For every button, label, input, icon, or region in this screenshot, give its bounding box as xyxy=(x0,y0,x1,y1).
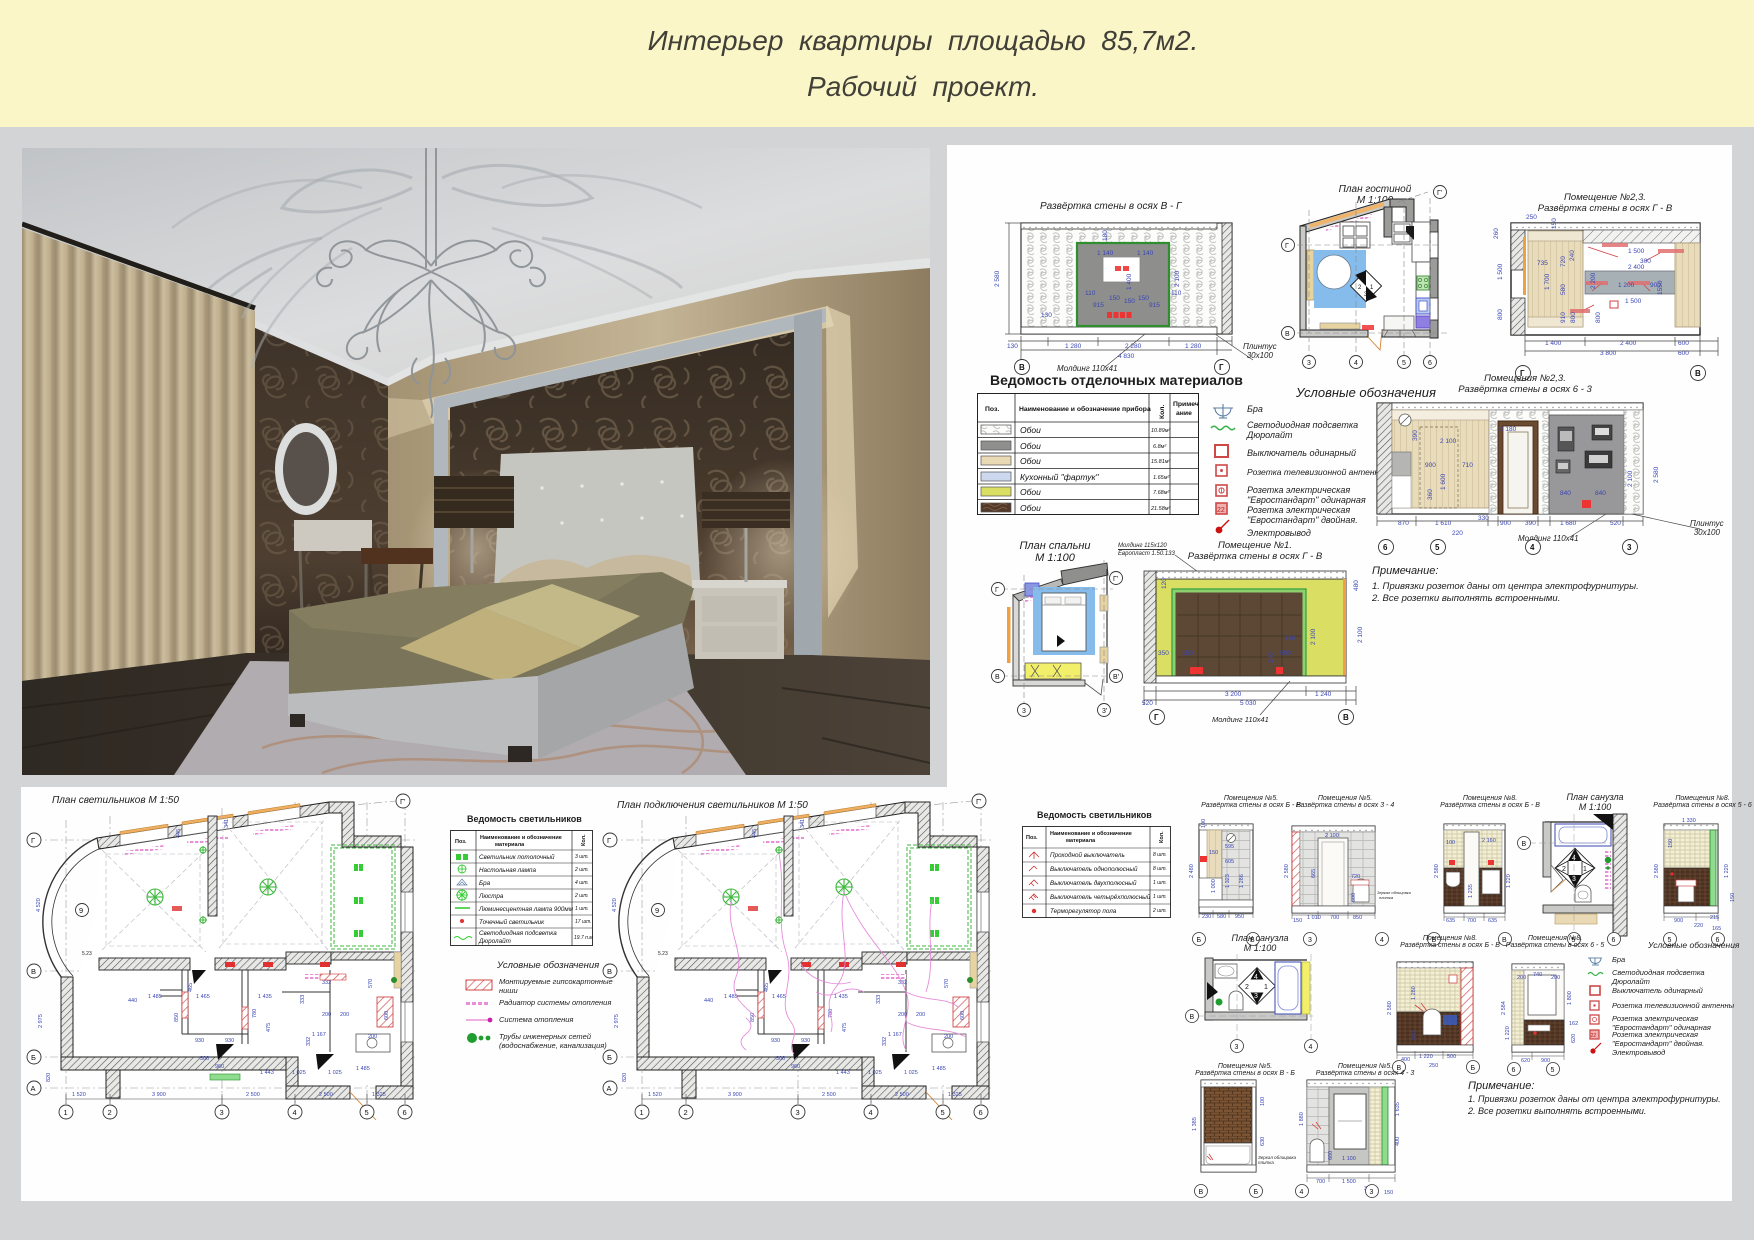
svg-text:2: 2 xyxy=(1245,984,1249,991)
svg-text:Г: Г xyxy=(995,587,999,594)
svg-text:595: 595 xyxy=(1225,844,1234,850)
svg-text:635: 635 xyxy=(1488,918,1497,924)
svg-text:В: В xyxy=(1285,331,1290,338)
svg-text:1 235: 1 235 xyxy=(1468,884,1474,898)
svg-text:В': В' xyxy=(1113,674,1119,681)
svg-text:700: 700 xyxy=(1467,918,1476,924)
svg-text:4: 4 xyxy=(1254,974,1258,981)
svg-text:1 400: 1 400 xyxy=(1126,273,1133,290)
svg-text:735: 735 xyxy=(1537,260,1548,267)
svg-text:150: 150 xyxy=(1668,839,1674,848)
svg-text:1 шт.: 1 шт. xyxy=(1153,894,1167,900)
svg-text:Наименование и обозначение: Наименование и обозначение xyxy=(1050,830,1132,837)
svg-text:5: 5 xyxy=(1402,360,1406,367)
svg-text:1 500: 1 500 xyxy=(1625,298,1642,305)
svg-text:150: 150 xyxy=(1182,650,1193,657)
svg-text:1 500: 1 500 xyxy=(1628,248,1645,255)
svg-text:840: 840 xyxy=(1560,490,1571,497)
svg-text:Выключатель четырёхполюсный: Выключатель четырёхполюсный xyxy=(1050,893,1151,901)
svg-text:620: 620 xyxy=(1571,1034,1577,1043)
svg-text:915: 915 xyxy=(1149,302,1160,309)
svg-text:материала: материала xyxy=(1066,838,1096,844)
svg-text:950: 950 xyxy=(1235,914,1244,920)
svg-text:1.65м²: 1.65м² xyxy=(1153,475,1169,481)
svg-text:220: 220 xyxy=(1694,923,1703,929)
svg-text:3: 3 xyxy=(1370,1189,1374,1196)
svg-text:2 580: 2 580 xyxy=(1654,864,1660,878)
svg-text:100: 100 xyxy=(1201,819,1207,828)
svg-text:В: В xyxy=(1199,1189,1204,1196)
svg-text:150: 150 xyxy=(1384,1190,1393,1196)
svg-text:Г: Г xyxy=(1154,713,1159,722)
svg-text:740: 740 xyxy=(1533,972,1542,978)
svg-text:1 140: 1 140 xyxy=(1097,250,1114,257)
svg-text:220: 220 xyxy=(1452,530,1463,537)
svg-text:120: 120 xyxy=(1161,578,1168,589)
svg-text:Б: Б xyxy=(1471,1065,1476,1072)
svg-text:Б: Б xyxy=(1197,937,1202,944)
svg-text:500: 500 xyxy=(1411,1031,1417,1040)
svg-text:900: 900 xyxy=(1425,462,1436,469)
svg-text:Г: Г xyxy=(1285,243,1289,250)
svg-text:3: 3 xyxy=(1235,1044,1239,1051)
svg-text:1 200: 1 200 xyxy=(1618,282,1635,289)
svg-text:2 584: 2 584 xyxy=(1501,1001,1507,1015)
svg-text:850: 850 xyxy=(1353,915,1362,921)
svg-text:100: 100 xyxy=(1260,1097,1266,1106)
svg-text:ание: ание xyxy=(1176,410,1192,417)
svg-text:150: 150 xyxy=(1551,218,1558,229)
svg-text:6: 6 xyxy=(1512,1067,1516,1074)
svg-text:Выключатель двухполюсный: Выключатель двухполюсный xyxy=(1050,879,1137,887)
svg-text:600: 600 xyxy=(1328,1151,1334,1160)
svg-text:240: 240 xyxy=(1569,250,1576,261)
svg-text:В: В xyxy=(1190,1014,1195,1021)
svg-text:2 100: 2 100 xyxy=(1174,270,1181,287)
svg-text:1 100: 1 100 xyxy=(1342,1156,1356,1162)
svg-text:630: 630 xyxy=(1260,1137,1266,1146)
svg-text:910: 910 xyxy=(1560,312,1567,323)
svg-text:700: 700 xyxy=(1330,915,1339,921)
svg-text:230: 230 xyxy=(1202,914,1211,920)
svg-text:1 385: 1 385 xyxy=(1192,1117,1198,1131)
svg-text:8 шт.: 8 шт. xyxy=(1153,852,1167,858)
svg-text:5 030: 5 030 xyxy=(1240,700,1257,707)
svg-text:100: 100 xyxy=(1446,840,1455,846)
svg-text:8 шт.: 8 шт. xyxy=(1153,866,1167,872)
svg-text:Г': Г' xyxy=(1113,576,1118,583)
svg-text:110: 110 xyxy=(1085,290,1096,297)
svg-text:В: В xyxy=(1019,363,1025,372)
svg-text:1 шт.: 1 шт. xyxy=(575,906,589,912)
svg-text:180: 180 xyxy=(1102,230,1109,241)
svg-text:915: 915 xyxy=(1093,302,1104,309)
svg-text:4: 4 xyxy=(1380,937,1384,944)
svg-text:2 580: 2 580 xyxy=(1434,864,1440,878)
svg-text:Кол.: Кол. xyxy=(581,834,587,846)
svg-text:2 шт.: 2 шт. xyxy=(1152,908,1167,914)
svg-text:110: 110 xyxy=(1171,290,1182,297)
svg-text:165: 165 xyxy=(1712,926,1721,932)
svg-text:840: 840 xyxy=(1595,490,1606,497)
svg-text:Обои: Обои xyxy=(1020,441,1041,451)
svg-text:3: 3 xyxy=(1307,360,1311,367)
svg-text:22: 22 xyxy=(1591,1033,1597,1039)
svg-text:1 240: 1 240 xyxy=(1315,691,1332,698)
svg-text:250: 250 xyxy=(1429,1063,1438,1069)
svg-text:1 600: 1 600 xyxy=(1440,473,1447,490)
svg-text:Молдинг 110х41: Молдинг 110х41 xyxy=(1518,534,1579,543)
svg-text:Обои: Обои xyxy=(1020,456,1041,466)
svg-text:200: 200 xyxy=(1551,975,1560,981)
svg-text:Кол.: Кол. xyxy=(1159,405,1166,419)
svg-text:1 280: 1 280 xyxy=(1065,343,1082,350)
svg-text:800: 800 xyxy=(1595,312,1602,323)
svg-text:Дюролайт: Дюролайт xyxy=(478,937,511,945)
svg-text:В: В xyxy=(1695,369,1701,378)
svg-text:6.8м²: 6.8м² xyxy=(1153,444,1166,450)
svg-text:1 140: 1 140 xyxy=(1137,250,1154,257)
svg-text:3 шт.: 3 шт. xyxy=(575,854,589,860)
svg-text:Люминесцентная лампа 900мм: Люминесцентная лампа 900мм xyxy=(478,906,574,913)
svg-text:1 286: 1 286 xyxy=(1239,874,1245,888)
svg-text:7.68м²: 7.68м² xyxy=(1153,490,1169,496)
svg-text:Б: Б xyxy=(1254,1189,1259,1196)
svg-text:3: 3 xyxy=(1308,937,1312,944)
svg-text:Г: Г xyxy=(1219,363,1224,372)
svg-text:700: 700 xyxy=(1316,1179,1325,1185)
svg-text:10.89м²: 10.89м² xyxy=(1151,428,1171,434)
svg-text:2 100: 2 100 xyxy=(1310,628,1317,645)
svg-text:2 160: 2 160 xyxy=(1482,838,1496,844)
svg-text:1 280: 1 280 xyxy=(1411,986,1417,1000)
svg-text:Точечный светильник: Точечный светильник xyxy=(479,918,545,926)
svg-text:360: 360 xyxy=(1427,489,1434,500)
svg-text:Г': Г' xyxy=(1437,190,1442,197)
svg-text:Обои: Обои xyxy=(1020,503,1041,513)
svg-text:800: 800 xyxy=(1570,312,1577,323)
svg-text:1 280: 1 280 xyxy=(1185,343,1202,350)
svg-text:240: 240 xyxy=(1268,652,1275,663)
svg-text:2 шт.: 2 шт. xyxy=(574,893,589,899)
svg-text:Поз.: Поз. xyxy=(985,406,999,413)
svg-text:150: 150 xyxy=(1138,295,1149,302)
svg-text:500: 500 xyxy=(1280,650,1291,657)
svg-text:1 500: 1 500 xyxy=(1342,1179,1356,1185)
svg-text:130: 130 xyxy=(1041,312,1052,319)
svg-text:400: 400 xyxy=(1395,1137,1401,1146)
svg-text:162: 162 xyxy=(1569,1021,1578,1027)
svg-text:150: 150 xyxy=(1124,298,1135,305)
svg-text:3 200: 3 200 xyxy=(1225,691,1242,698)
svg-text:Проходной выключатель: Проходной выключатель xyxy=(1050,851,1125,859)
svg-text:3: 3 xyxy=(1022,708,1026,715)
svg-text:В: В xyxy=(995,674,1000,681)
svg-text:Кол.: Кол. xyxy=(1159,831,1165,843)
svg-text:3: 3 xyxy=(1254,993,1258,1000)
svg-text:5: 5 xyxy=(1435,543,1440,552)
svg-text:17 шт.: 17 шт. xyxy=(575,919,592,925)
svg-text:6: 6 xyxy=(1428,360,1432,367)
svg-text:4 шт.: 4 шт. xyxy=(575,880,589,886)
svg-text:Светильник потолочный: Светильник потолочный xyxy=(479,853,555,861)
svg-text:2 580: 2 580 xyxy=(1387,1001,1393,1015)
svg-text:2 480: 2 480 xyxy=(1189,864,1195,878)
svg-text:350: 350 xyxy=(1158,650,1169,657)
svg-text:900: 900 xyxy=(1674,918,1683,924)
svg-text:4: 4 xyxy=(1309,1044,1313,1051)
svg-text:1 шт.: 1 шт. xyxy=(1153,880,1167,886)
svg-text:150: 150 xyxy=(1209,850,1218,856)
svg-text:Светодиодная подсветка: Светодиодная подсветка xyxy=(479,929,557,937)
svg-text:1 330: 1 330 xyxy=(1682,818,1696,824)
svg-text:2 100: 2 100 xyxy=(1440,438,1457,445)
svg-text:1550: 1550 xyxy=(1657,280,1664,295)
svg-text:1 500: 1 500 xyxy=(1497,263,1504,280)
svg-text:800: 800 xyxy=(1497,309,1504,320)
svg-text:материала: материала xyxy=(495,842,525,848)
svg-text:2 180: 2 180 xyxy=(1500,426,1517,433)
svg-text:150: 150 xyxy=(1109,295,1120,302)
svg-text:Терморегулятор пола: Терморегулятор пола xyxy=(1050,908,1117,915)
svg-text:Наименование и обозначение при: Наименование и обозначение прибора xyxy=(1019,405,1151,413)
svg-text:В: В xyxy=(1522,841,1527,848)
svg-text:580: 580 xyxy=(1217,914,1226,920)
svg-text:1 220: 1 220 xyxy=(1724,864,1730,878)
svg-text:605: 605 xyxy=(1225,859,1234,865)
svg-text:6: 6 xyxy=(1383,543,1388,552)
svg-text:720: 720 xyxy=(1560,256,1567,267)
svg-text:480: 480 xyxy=(1353,580,1360,591)
svg-text:2 100: 2 100 xyxy=(1325,833,1339,839)
svg-text:1: 1 xyxy=(1264,984,1268,991)
svg-text:Поз.: Поз. xyxy=(1026,835,1038,841)
svg-text:900: 900 xyxy=(1541,1058,1550,1064)
svg-text:Примеч: Примеч xyxy=(1173,401,1199,408)
svg-text:1 220: 1 220 xyxy=(1506,874,1512,888)
svg-text:Наименование и обозначение: Наименование и обозначение xyxy=(480,834,562,841)
svg-text:2 580: 2 580 xyxy=(1284,864,1290,878)
svg-text:Бра: Бра xyxy=(479,880,491,887)
svg-text:635: 635 xyxy=(1446,918,1455,924)
svg-text:Обои: Обои xyxy=(1020,487,1041,497)
svg-text:1 323: 1 323 xyxy=(1225,874,1231,888)
svg-text:150: 150 xyxy=(1293,918,1302,924)
svg-text:2 400: 2 400 xyxy=(1628,264,1645,271)
svg-text:2 580: 2 580 xyxy=(1653,466,1660,483)
svg-text:6: 6 xyxy=(1612,937,1616,944)
svg-text:110: 110 xyxy=(1285,635,1296,642)
svg-text:4: 4 xyxy=(1300,1189,1304,1196)
svg-text:Обои: Обои xyxy=(1020,425,1041,435)
svg-text:4: 4 xyxy=(1354,360,1358,367)
svg-text:Люстра: Люстра xyxy=(478,893,504,900)
svg-text:250: 250 xyxy=(1526,214,1537,221)
svg-text:Выключатель однополюсный: Выключатель однополюсный xyxy=(1050,865,1138,873)
svg-text:1 220: 1 220 xyxy=(1505,1026,1511,1040)
svg-text:1 800: 1 800 xyxy=(1567,991,1573,1005)
svg-text:1 700: 1 700 xyxy=(1544,273,1551,290)
svg-text:390: 390 xyxy=(1412,430,1419,441)
svg-text:5: 5 xyxy=(1551,1067,1555,1074)
svg-text:Кухонный "фартук": Кухонный "фартук" xyxy=(1020,472,1099,482)
svg-text:710: 710 xyxy=(1462,462,1473,469)
svg-text:620: 620 xyxy=(1521,1058,1530,1064)
svg-text:19.7 п.м: 19.7 п.м xyxy=(574,935,593,941)
svg-text:1 000: 1 000 xyxy=(1211,879,1217,893)
svg-text:3: 3 xyxy=(1627,543,1632,552)
svg-text:Молдинг 110х41: Молдинг 110х41 xyxy=(1212,715,1269,724)
svg-text:600: 600 xyxy=(1351,893,1357,902)
svg-text:Настольная лампа: Настольная лампа xyxy=(479,867,537,874)
svg-text:1 880: 1 880 xyxy=(1299,1112,1305,1126)
svg-text:580: 580 xyxy=(1560,284,1567,295)
svg-text:665: 665 xyxy=(1311,869,1317,878)
svg-text:260: 260 xyxy=(1493,228,1500,239)
svg-text:3': 3' xyxy=(1102,708,1107,715)
svg-text:плитка: плитка xyxy=(1379,895,1394,900)
svg-text:2 200: 2 200 xyxy=(1590,272,1597,289)
svg-text:2: 2 xyxy=(1562,866,1566,873)
svg-text:4: 4 xyxy=(1530,543,1535,552)
svg-text:150: 150 xyxy=(1730,893,1736,902)
svg-text:22: 22 xyxy=(1217,507,1225,514)
svg-text:720: 720 xyxy=(1351,874,1360,880)
svg-text:200: 200 xyxy=(1517,975,1526,981)
svg-text:1: 1 xyxy=(1583,866,1587,873)
svg-text:130: 130 xyxy=(1007,343,1018,350)
svg-text:2 580: 2 580 xyxy=(994,270,1001,287)
svg-text:1 010: 1 010 xyxy=(1307,915,1321,921)
svg-text:1 635: 1 635 xyxy=(1395,1102,1401,1116)
svg-text:Поз.: Поз. xyxy=(455,839,467,845)
svg-text:2 шт.: 2 шт. xyxy=(574,867,589,873)
svg-text:21.58м²: 21.58м² xyxy=(1150,506,1171,512)
svg-text:2 100: 2 100 xyxy=(1357,626,1364,643)
svg-text:В: В xyxy=(1343,713,1349,722)
svg-text:15.81м²: 15.81м² xyxy=(1151,459,1171,465)
svg-text:2 100: 2 100 xyxy=(1627,470,1634,487)
